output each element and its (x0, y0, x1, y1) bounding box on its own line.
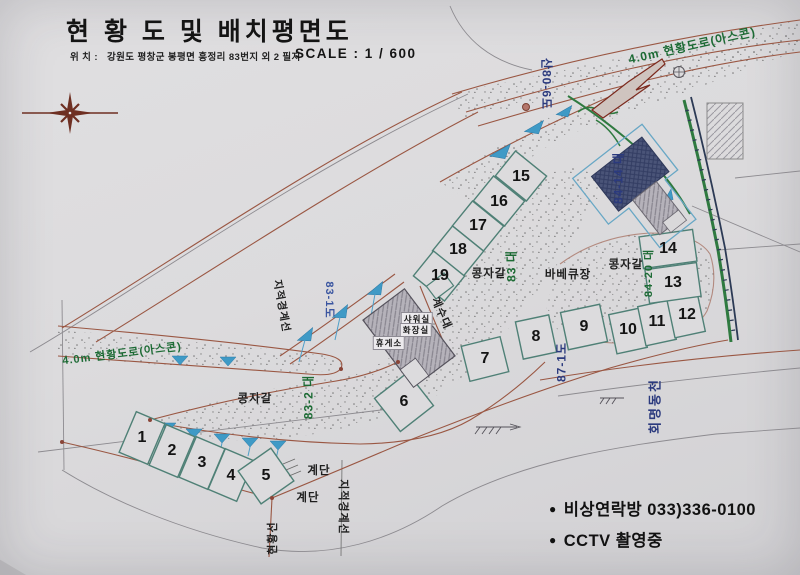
plot-number-17: 17 (469, 217, 487, 235)
label-toilet: 화장실 (400, 323, 432, 337)
bullet-icon: ● (549, 533, 557, 547)
notice-emergency-text: 비상연락방 033)336-0100 (564, 501, 756, 519)
plot-number-4: 4 (227, 467, 236, 485)
label-cadastral-2: 지적경계선 (336, 479, 352, 535)
plot-number-15: 15 (512, 168, 530, 186)
notice-cctv: ●CCTV 촬영중 (549, 527, 663, 551)
scale-label: SCALE : 1 / 600 (295, 46, 417, 61)
plot-number-11: 11 (649, 313, 666, 331)
notice-cctv-text: CCTV 촬영중 (564, 532, 663, 550)
label-87-1: 87-1도 (553, 342, 570, 382)
location-label: 위 치 : (70, 52, 98, 63)
label-84-14: 84-14 대 (610, 152, 627, 204)
plot-number-6: 6 (400, 393, 409, 411)
label-san80-6: 산80-6도 (539, 58, 556, 110)
plot-number-18: 18 (449, 241, 467, 259)
label-rest-area: 휴게소 (373, 336, 405, 350)
plot-number-2: 2 (168, 442, 177, 460)
plot-number-16: 16 (490, 193, 508, 211)
label-stream: 회명동천 (645, 378, 664, 434)
legend-hatch-rect (707, 103, 743, 159)
label-stairs-2: 계단 (296, 489, 319, 505)
plot-number-7: 7 (481, 350, 490, 368)
plot-number-13: 13 (664, 274, 682, 292)
label-status-line: 현황선 (264, 521, 280, 554)
plot-number-5: 5 (262, 467, 271, 485)
page-title: 현 황 도 및 배치평면도 (66, 12, 353, 48)
plot-number-9: 9 (580, 318, 589, 336)
compass-icon (22, 92, 118, 134)
label-stairs-1: 계단 (307, 462, 330, 478)
plot-number-3: 3 (198, 454, 207, 472)
notice-emergency: ●비상연락방 033)336-0100 (549, 496, 756, 520)
location-line: 위 치 : 강원도 평창군 봉평면 흥정리 83번지 외 2 필지 (70, 49, 301, 63)
plot-number-12: 12 (678, 306, 696, 324)
plot-number-19: 19 (431, 267, 449, 285)
label-gravel-2: 콩자갈 (472, 265, 507, 281)
label-83-2: 83-2 대 (300, 375, 317, 419)
label-gravel-1: 콩자갈 (238, 390, 273, 406)
label-83-1: 83-1도 (322, 281, 338, 318)
bullet-icon: ● (549, 502, 557, 516)
label-bbq: 바베큐장 (545, 266, 591, 282)
site-plan-signboard: 현 황 도 및 배치평면도 위 치 : 강원도 평창군 봉평면 흥정리 83번지… (0, 0, 800, 575)
plot-number-8: 8 (532, 328, 541, 346)
location-value: 강원도 평창군 봉평면 흥정리 83번지 외 2 필지 (107, 52, 301, 63)
plot-number-1: 1 (138, 429, 147, 447)
plot-number-10: 10 (619, 321, 637, 339)
plot-number-14: 14 (659, 240, 677, 258)
label-gravel-3: 콩자갈 (609, 256, 644, 272)
